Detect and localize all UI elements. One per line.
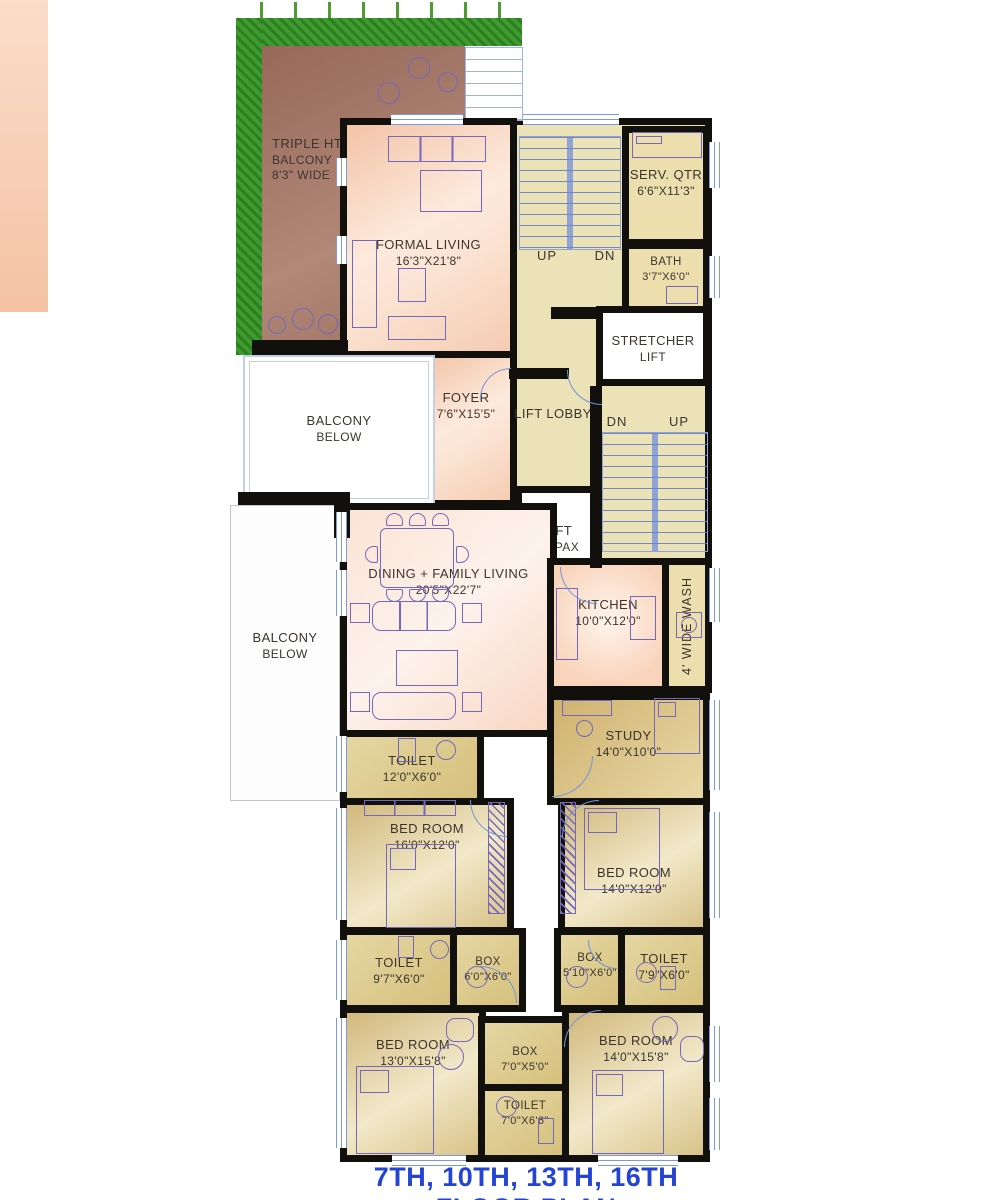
patio-chair-icon xyxy=(318,314,338,334)
sofa-icon xyxy=(372,601,456,631)
armchair-icon xyxy=(438,1044,464,1070)
patio-chair-icon xyxy=(438,72,458,92)
kitchen-counter-icon xyxy=(556,588,578,660)
wall-segment xyxy=(252,340,348,355)
window xyxy=(336,940,347,1000)
room-balcony-below-2: BALCONYBELOW xyxy=(230,505,340,801)
window xyxy=(709,142,720,188)
window xyxy=(709,812,720,918)
window xyxy=(709,256,720,298)
stair-direction-label: UP xyxy=(662,414,696,430)
balcony-railing xyxy=(465,47,523,121)
floor-plan-title: 7TH, 10TH, 13TH, 16TH FLOOR PLAN xyxy=(330,1162,722,1200)
sofa-icon xyxy=(352,240,377,328)
window xyxy=(336,158,347,186)
window xyxy=(523,114,619,125)
armchair-icon xyxy=(652,1016,678,1042)
room-stretcher-lift: STRETCHERLIFT xyxy=(596,306,710,386)
room-label-serv-qtr: SERV. QTR6'6"X11'3" xyxy=(629,167,703,199)
window xyxy=(336,236,347,264)
room-box-3: BOX7'0"X5'0" xyxy=(478,1016,572,1092)
stair-direction-label: DN xyxy=(588,248,622,264)
side-table-icon xyxy=(350,692,370,712)
window xyxy=(709,1098,720,1150)
planter-strip xyxy=(236,18,522,46)
armchair-icon xyxy=(680,1036,704,1062)
patio-chair-icon xyxy=(268,316,286,334)
room-lift-lobby: LIFT LOBBY xyxy=(509,398,597,438)
side-table-icon xyxy=(462,692,482,712)
room-label-stretcher-lift: STRETCHERLIFT xyxy=(603,333,703,365)
stair-direction-label: DN xyxy=(600,414,634,430)
washing-machine-icon xyxy=(676,612,702,638)
sofa-icon xyxy=(388,316,446,340)
bed-icon xyxy=(654,698,700,754)
room-label-box-3: BOX7'0"X5'0" xyxy=(485,1045,565,1074)
window xyxy=(709,568,720,622)
window xyxy=(709,1026,720,1082)
window xyxy=(336,570,347,616)
cabinet-icon xyxy=(364,800,456,816)
bed-icon xyxy=(632,132,702,158)
bed-icon xyxy=(356,1066,434,1154)
sink-icon xyxy=(636,962,657,983)
chair-icon xyxy=(432,513,449,526)
sink-icon xyxy=(436,740,456,760)
toilet-icon xyxy=(398,936,414,958)
side-table-icon xyxy=(462,603,482,623)
room-label-triple-ht-balcony: TRIPLE HT.BALCONY8'3" WIDE xyxy=(272,136,345,184)
wall-segment xyxy=(551,307,601,319)
room-label-balcony-below-1: BALCONYBELOW xyxy=(245,413,433,445)
chair-icon xyxy=(409,513,426,526)
desk-icon xyxy=(562,700,612,716)
rug-icon xyxy=(420,170,482,212)
chair-icon xyxy=(386,513,403,526)
stair-direction-label: UP xyxy=(530,248,564,264)
dining-table-icon xyxy=(380,528,454,588)
table-icon xyxy=(398,268,426,302)
sink-icon xyxy=(496,1096,517,1117)
wall-segment xyxy=(509,368,569,379)
window xyxy=(336,1018,347,1148)
room-label-lift-lobby: LIFT LOBBY xyxy=(509,406,597,423)
window xyxy=(336,808,347,920)
side-table-icon xyxy=(350,603,370,623)
chair-icon xyxy=(365,546,378,563)
sink-icon xyxy=(430,940,449,959)
room-balcony-below-1: BALCONYBELOW xyxy=(243,355,435,505)
room-label-bath: BATH3'7"X6'0" xyxy=(629,255,703,284)
chair-icon xyxy=(576,720,593,737)
planter-strip xyxy=(236,18,262,355)
patio-chair-icon xyxy=(292,308,314,330)
patio-chair-icon xyxy=(408,57,430,79)
sink-icon xyxy=(566,966,588,988)
armchair-icon xyxy=(446,1018,474,1042)
coffee-table-icon xyxy=(396,650,458,686)
wall-segment xyxy=(238,492,348,505)
window xyxy=(336,736,347,792)
room-label-balcony-below-2: BALCONYBELOW xyxy=(231,630,339,662)
sofa-icon xyxy=(388,136,486,162)
floor-plan: 7TH, 10TH, 13TH, 16TH FLOOR PLAN TRIPLE … xyxy=(0,0,985,1200)
toilet-icon xyxy=(398,738,416,762)
window xyxy=(391,114,463,125)
sofa-icon xyxy=(372,692,456,720)
corridor xyxy=(0,0,48,312)
kitchen-sink-icon xyxy=(630,596,656,640)
toilet-icon xyxy=(538,1118,554,1144)
stairs-icon xyxy=(602,432,708,552)
room-toilet-4: TOILET7'0"X6'6" xyxy=(478,1084,572,1162)
grass-tufts-icon xyxy=(236,2,526,18)
bathtub-icon xyxy=(666,286,698,304)
room-label-toilet-2: TOILET9'7"X6'0" xyxy=(347,955,451,987)
bed-icon xyxy=(386,844,456,928)
window xyxy=(336,512,347,562)
toilet-icon xyxy=(660,966,676,990)
patio-table-icon xyxy=(378,82,400,104)
window xyxy=(709,700,720,790)
bed-icon xyxy=(592,1070,664,1154)
stairs-icon xyxy=(519,136,621,250)
